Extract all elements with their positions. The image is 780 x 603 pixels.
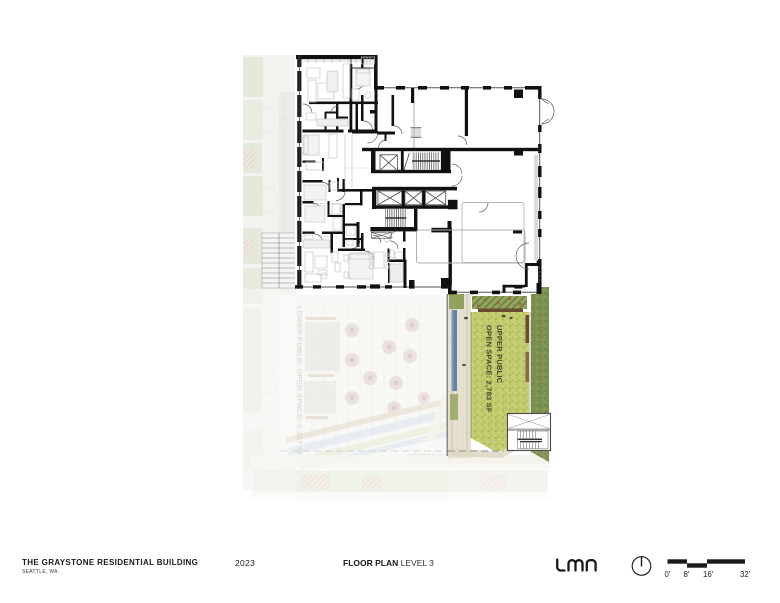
svg-text:16': 16' xyxy=(703,570,714,579)
svg-text:8': 8' xyxy=(684,570,690,579)
svg-text:32': 32' xyxy=(740,570,751,579)
svg-text:UPPER PUBLIC: UPPER PUBLIC xyxy=(495,325,504,384)
svg-text:OPEN SPACE: 2,783 SF: OPEN SPACE: 2,783 SF xyxy=(485,325,494,413)
svg-text:0': 0' xyxy=(665,570,671,579)
